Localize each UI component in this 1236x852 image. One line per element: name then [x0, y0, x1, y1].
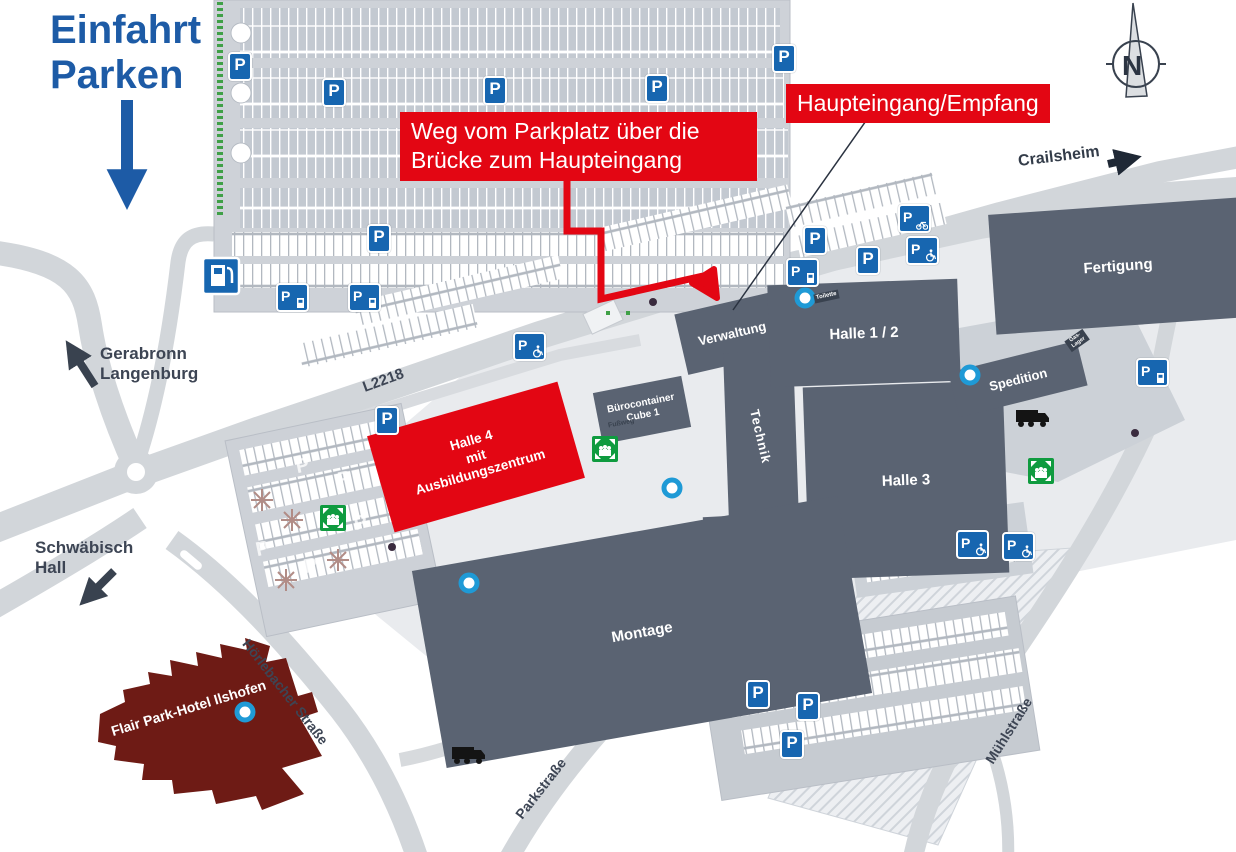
parking-letter: P [809, 229, 820, 248]
parking-letter: P [328, 81, 339, 100]
building-halle-4: Halle 4 mit Ausbildungszentrum [367, 382, 585, 533]
building-spedition: Spedition [948, 341, 1087, 418]
parking-letter: P [515, 336, 527, 355]
parking-icon: P [228, 52, 252, 81]
assembly-point-icon [1028, 458, 1054, 484]
parking-icon: P [483, 76, 507, 105]
parking-icon: P [645, 74, 669, 103]
parking-letter: P [651, 77, 662, 96]
wheelchair-glyph [532, 345, 543, 358]
route-path [567, 180, 703, 299]
road-marking [178, 549, 203, 572]
parking-lane-letter: P [336, 467, 354, 492]
entry-title: Einfahrt Parken [50, 8, 201, 98]
crailsheim-arrow [1108, 158, 1134, 164]
parking-letter: P [1004, 536, 1016, 555]
road-marking [319, 431, 346, 449]
street-parkstrasse: Parkstraße [512, 755, 569, 822]
parking-ev-icon: P [348, 283, 381, 312]
bridge [583, 300, 623, 334]
fuel-station-icon [203, 258, 239, 294]
parking-accessible-icon: P [906, 236, 939, 265]
ev-charger-glyph [368, 296, 378, 309]
parking-letter: P [788, 262, 800, 281]
parking-letter: P [381, 409, 392, 428]
building-buerocontainer: Bürocontainer Cube 1 [593, 376, 691, 444]
parking-accessible-icon: P [1002, 532, 1035, 561]
parking-letter: P [958, 534, 970, 553]
building-halle-1-2: Halle 1 / 2 [767, 279, 960, 388]
gerabronn-arrow [70, 347, 95, 386]
parking-letter: P [786, 733, 797, 752]
parking-letter: P [752, 683, 763, 702]
parking-ev-icon: P [1136, 358, 1169, 387]
parking-motorcycle-icon: P [898, 204, 931, 233]
parking-accessible-icon: P [513, 332, 546, 361]
entrance-callout: Haupteingang/Empfang [786, 84, 1050, 123]
wheelchair-glyph [925, 249, 936, 262]
route-arrowhead [692, 269, 717, 298]
parking-letter: P [350, 287, 362, 306]
gate-dot [649, 298, 657, 306]
roundabout-island [127, 463, 145, 481]
direction-crailsheim: Crailsheim [1017, 143, 1100, 171]
bush [626, 311, 630, 315]
parking-letter: P [908, 240, 920, 259]
ev-charger-glyph [296, 296, 306, 309]
site-map: Verwaltung Technik Halle 1 / 2 Halle 3 F… [0, 0, 1236, 852]
parking-icon: P [856, 246, 880, 275]
direction-gerabronn-langenburg: Gerabronn Langenburg [100, 344, 198, 383]
ev-charger-glyph [1156, 371, 1166, 384]
poi-marker [664, 480, 680, 496]
parking-letter: P [778, 47, 789, 66]
parking-letter: P [900, 208, 912, 227]
parking-icon: P [746, 680, 770, 709]
building-montage-label: Montage [610, 618, 674, 645]
parking-icon: P [322, 78, 346, 107]
building-spedition-label: Spedition [987, 365, 1048, 394]
wheelchair-glyph [1021, 545, 1032, 558]
parking-letter: P [489, 79, 500, 98]
parking-lane-letter: P [254, 537, 272, 562]
street-muehlstrasse: Mühlstraße [982, 695, 1035, 767]
building-halle-1-2-label: Halle 1 / 2 [829, 323, 899, 342]
parking-ev-icon: P [786, 258, 819, 287]
bush [606, 311, 610, 315]
assembly-point-icon [320, 505, 346, 531]
parking-accessible-icon: P [956, 530, 989, 559]
compass: N [1106, 3, 1166, 97]
parking-lane-letter: P [302, 554, 320, 579]
parking-icon: P [780, 730, 804, 759]
gate-dot [388, 543, 396, 551]
building-fertigung: Fertigung [988, 197, 1236, 334]
street-l2218: L2218 [360, 365, 406, 396]
building-halle-3-label: Halle 3 [882, 471, 931, 490]
parking-letter: P [373, 227, 384, 246]
parking-letter: P [1138, 362, 1150, 381]
direction-schwaebisch-hall: Schwäbisch Hall [35, 538, 133, 577]
truck-icon [1016, 410, 1049, 427]
building-halle-4-label: Halle 4 mit Ausbildungszentrum [404, 414, 547, 500]
compass-north-label: N [1122, 50, 1142, 81]
parking-icon: P [772, 44, 796, 73]
parking-ev-icon: P [276, 283, 309, 312]
poi-marker [237, 704, 253, 720]
parking-lane-letter: P [294, 454, 312, 479]
parking-lane-letter: P [352, 511, 370, 536]
gate-dot [1131, 429, 1139, 437]
parking-icon: P [367, 224, 391, 253]
building-verwaltung-label: Verwaltung [697, 318, 768, 348]
parking-letter: P [278, 287, 290, 306]
parking-letter: P [234, 55, 245, 74]
roundabout [114, 450, 158, 494]
route-callout: Weg vom Parkplatz über die Brücke zum Ha… [400, 112, 757, 181]
building-technik-label: Technik [747, 407, 774, 464]
building-hotel-label: Flair Park-Hotel Ilshofen [109, 677, 267, 739]
building-montage: Montage [412, 496, 872, 768]
building-fertigung-label: Fertigung [1083, 255, 1153, 277]
parking-letter: P [862, 249, 873, 268]
parking-icon: P [375, 406, 399, 435]
parking-icon: P [796, 692, 820, 721]
parking-letter: P [802, 695, 813, 714]
wheelchair-glyph [975, 543, 986, 556]
parking-icon: P [803, 226, 827, 255]
motorcycle-glyph [916, 218, 928, 230]
ev-charger-glyph [806, 271, 816, 284]
